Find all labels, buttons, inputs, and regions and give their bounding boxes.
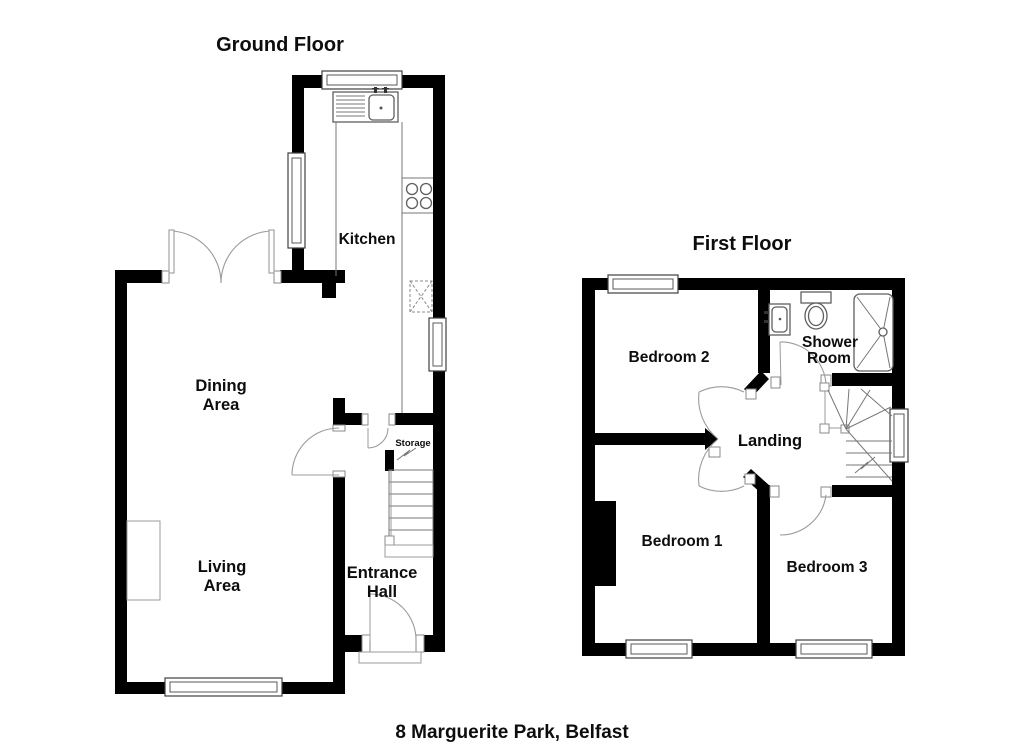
room-label-shower-1: Shower bbox=[802, 334, 858, 351]
kitchen-right-window bbox=[429, 318, 446, 371]
bedroom3-window bbox=[796, 640, 872, 658]
kitchen-counters bbox=[336, 122, 402, 413]
living-room-window bbox=[165, 678, 282, 696]
address-caption: 8 Marguerite Park, Belfast bbox=[395, 722, 629, 743]
room-label-living-2: Area bbox=[204, 577, 242, 595]
kitchen-top-window bbox=[322, 71, 402, 89]
appliance-space bbox=[410, 281, 432, 312]
kitchen-sink bbox=[333, 87, 398, 122]
first-floor-title: First Floor bbox=[693, 233, 792, 255]
bedroom3-door bbox=[780, 495, 826, 535]
kitchen-fixtures bbox=[333, 87, 433, 413]
dining-hall-door bbox=[292, 428, 339, 475]
room-label-dining-1: Dining bbox=[195, 377, 246, 395]
room-label-bedroom1: Bedroom 1 bbox=[642, 533, 723, 550]
ground-floor-plan: Ground Floor Kitchen Dining Area Living … bbox=[115, 34, 446, 696]
ground-floor-title: Ground Floor bbox=[216, 34, 344, 56]
room-label-landing: Landing bbox=[738, 432, 802, 450]
living-chimney-breast bbox=[127, 521, 160, 600]
floorplan-page: Ground Floor Kitchen Dining Area Living … bbox=[0, 0, 1024, 745]
stairs-window bbox=[890, 409, 908, 462]
room-label-storage: Storage bbox=[395, 438, 430, 449]
room-label-shower-2: Room bbox=[807, 350, 851, 367]
bedroom1-window bbox=[626, 640, 692, 658]
storage-door bbox=[368, 428, 388, 448]
room-label-kitchen: Kitchen bbox=[339, 231, 396, 248]
front-door bbox=[359, 594, 421, 663]
shower-enclosure bbox=[854, 294, 893, 371]
room-label-entrance-1: Entrance bbox=[347, 564, 418, 582]
room-label-living-1: Living bbox=[198, 558, 247, 576]
toilet bbox=[801, 292, 831, 329]
hob bbox=[402, 178, 433, 213]
room-label-entrance-2: Hall bbox=[367, 583, 397, 601]
room-label-bedroom2: Bedroom 2 bbox=[629, 349, 710, 366]
floorplan-drawing: Ground Floor Kitchen Dining Area Living … bbox=[0, 0, 1024, 745]
room-label-bedroom3: Bedroom 3 bbox=[787, 559, 868, 576]
room-label-dining-2: Area bbox=[203, 396, 241, 414]
first-floor-plan: First Floor Bedroom 2 Shower Room Landin… bbox=[582, 233, 908, 658]
kitchen-left-window bbox=[288, 153, 305, 248]
first-floor-stairs bbox=[820, 383, 892, 481]
bedroom2-window bbox=[608, 275, 678, 293]
french-doors bbox=[169, 230, 274, 283]
